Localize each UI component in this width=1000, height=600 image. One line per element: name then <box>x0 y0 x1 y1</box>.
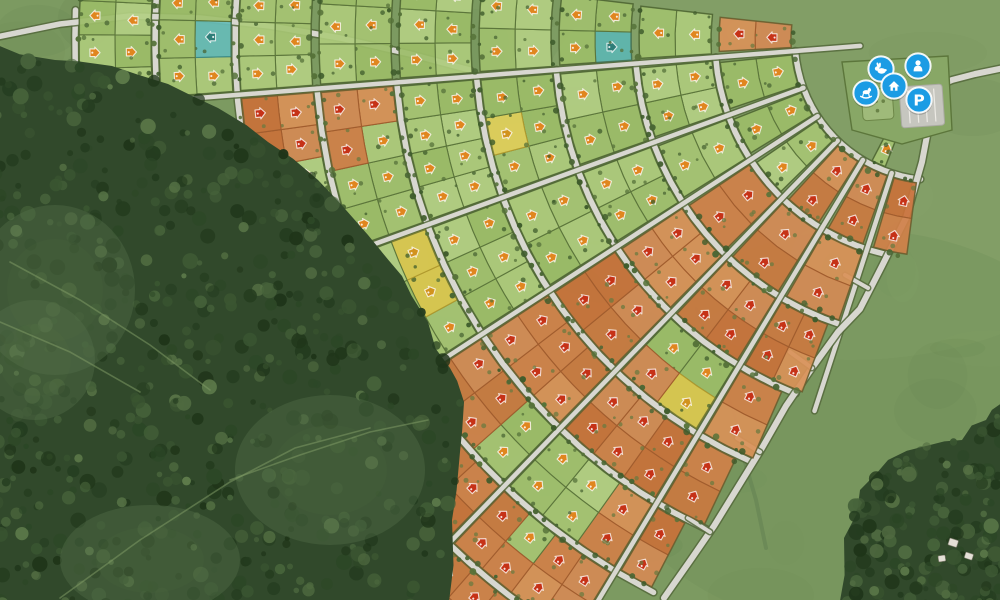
map-viewport[interactable]: P <box>0 0 1000 600</box>
parcel-block <box>635 6 713 60</box>
marker-person-icon[interactable] <box>905 53 932 81</box>
parcel[interactable] <box>515 0 554 30</box>
parking-label: P <box>913 92 924 110</box>
parcel[interactable] <box>400 0 439 11</box>
map-canvas[interactable]: P <box>0 0 1000 600</box>
marker-house-icon[interactable] <box>881 73 908 101</box>
marker-parking-icon[interactable]: P <box>906 87 933 115</box>
marker-rocking-horse-icon[interactable] <box>853 80 880 108</box>
parcel-block <box>236 0 318 91</box>
parcel-block <box>555 0 637 65</box>
farm-building <box>938 555 946 562</box>
parcel-block <box>478 0 556 71</box>
parcel-block <box>396 0 479 78</box>
parcel-block <box>155 0 238 97</box>
parcel-block <box>317 0 397 84</box>
